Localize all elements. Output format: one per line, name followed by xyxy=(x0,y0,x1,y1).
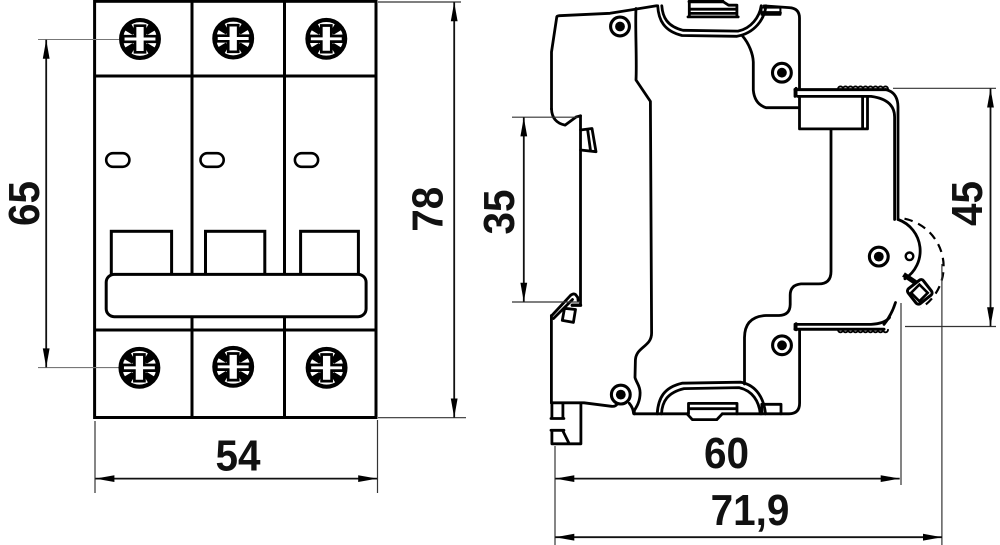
svg-text:78: 78 xyxy=(403,187,452,232)
svg-text:65: 65 xyxy=(0,181,48,226)
svg-text:54: 54 xyxy=(215,431,260,480)
svg-text:71,9: 71,9 xyxy=(711,485,790,534)
svg-text:45: 45 xyxy=(942,181,991,226)
svg-text:35: 35 xyxy=(474,189,523,234)
svg-text:60: 60 xyxy=(704,428,749,477)
